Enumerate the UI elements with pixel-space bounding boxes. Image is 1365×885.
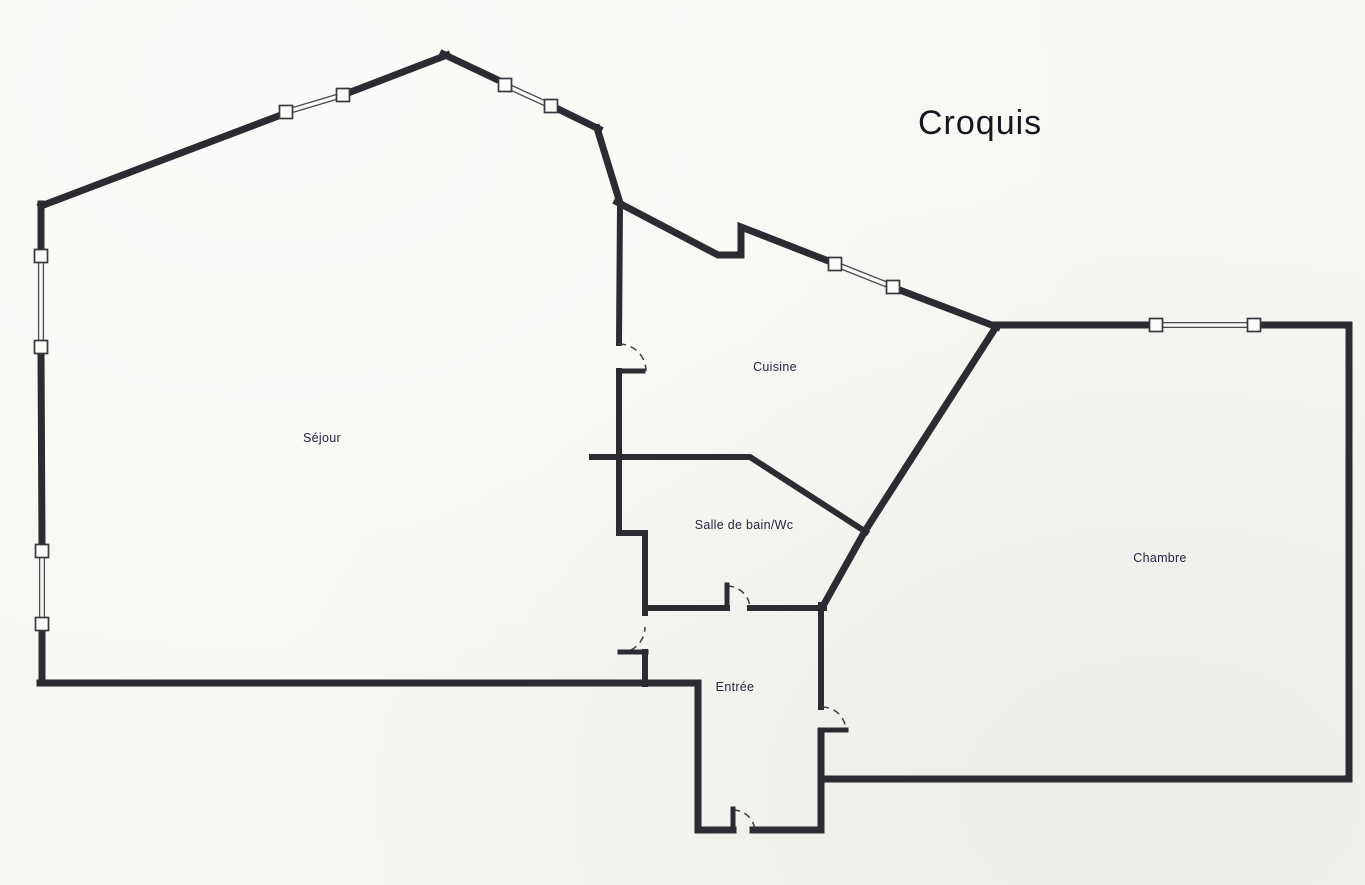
- scanned-floor-plan-page: Croquis SéjourCuisineSalle de bain/WcEnt…: [0, 0, 1365, 885]
- wall-chambre-west-diag: [823, 327, 996, 606]
- room-label-cuisine: Cuisine: [753, 360, 797, 374]
- wall-left-b: [41, 352, 42, 546]
- room-label-entree: Entrée: [716, 680, 755, 694]
- window-topright-diag-endblock: [499, 79, 512, 92]
- door-entree-chambre: [821, 707, 846, 731]
- wall-topleft-diag-b: [348, 55, 447, 93]
- room-label-sejour: Séjour: [303, 431, 341, 445]
- room-label-chambre: Chambre: [1133, 551, 1187, 565]
- window-topleft-diag-glazing: [285, 93, 342, 110]
- window-topleft-diag-glazing: [287, 97, 344, 114]
- plan-title: Croquis: [918, 104, 1042, 143]
- window-chambre-endblock: [1150, 319, 1163, 332]
- window-left-upper-endblock: [35, 250, 48, 263]
- wall-topleft-diag-a: [41, 115, 281, 206]
- door-entree-chambre-swing-arc: [822, 707, 846, 731]
- window-cuisine-glazing: [836, 262, 894, 285]
- door-salle-de-bain-swing-arc: [727, 586, 750, 609]
- window-left-lower-endblock: [36, 618, 49, 631]
- window-cuisine: [829, 258, 900, 294]
- window-left-upper-endblock: [35, 341, 48, 354]
- window-topleft-diag-endblock: [337, 89, 350, 102]
- door-sejour-cuisine-swing-arc: [619, 344, 646, 371]
- wall-cuisine-north-a: [617, 202, 831, 262]
- door-salle-de-bain: [727, 585, 750, 609]
- window-chambre-endblock: [1248, 319, 1261, 332]
- wall-sejour-south: [40, 683, 733, 830]
- wall-topright-diag-b: [556, 108, 599, 129]
- window-chambre: [1150, 319, 1261, 332]
- window-left-lower-endblock: [36, 545, 49, 558]
- window-cuisine-endblock: [829, 258, 842, 271]
- wall-step: [597, 128, 620, 203]
- wall-cuisine-north-b: [897, 289, 997, 327]
- door-sejour-entree-swing-arc: [619, 627, 645, 653]
- door-sejour-entree: [619, 627, 646, 653]
- wall-chambre-outline: [822, 325, 1349, 779]
- room-label-salle-de-bain-wc: Salle de bain/Wc: [695, 518, 794, 532]
- wall-sejour-cuisine-b: [619, 371, 645, 613]
- window-left-upper: [35, 250, 48, 354]
- window-topleft-diag-endblock: [280, 106, 293, 119]
- wall-topright-diag-a: [443, 54, 500, 81]
- floor-plan-drawing: [0, 0, 1365, 885]
- wall-entree-south-east: [753, 731, 821, 830]
- window-topleft-diag: [280, 89, 350, 119]
- window-cuisine-endblock: [887, 281, 900, 294]
- door-sejour-cuisine: [619, 344, 646, 371]
- window-left-lower: [36, 545, 49, 631]
- window-cuisine-glazing: [834, 266, 892, 289]
- wall-sejour-cuisine-a: [619, 204, 620, 343]
- window-topright-diag-endblock: [545, 100, 558, 113]
- window-topright-diag: [499, 79, 558, 113]
